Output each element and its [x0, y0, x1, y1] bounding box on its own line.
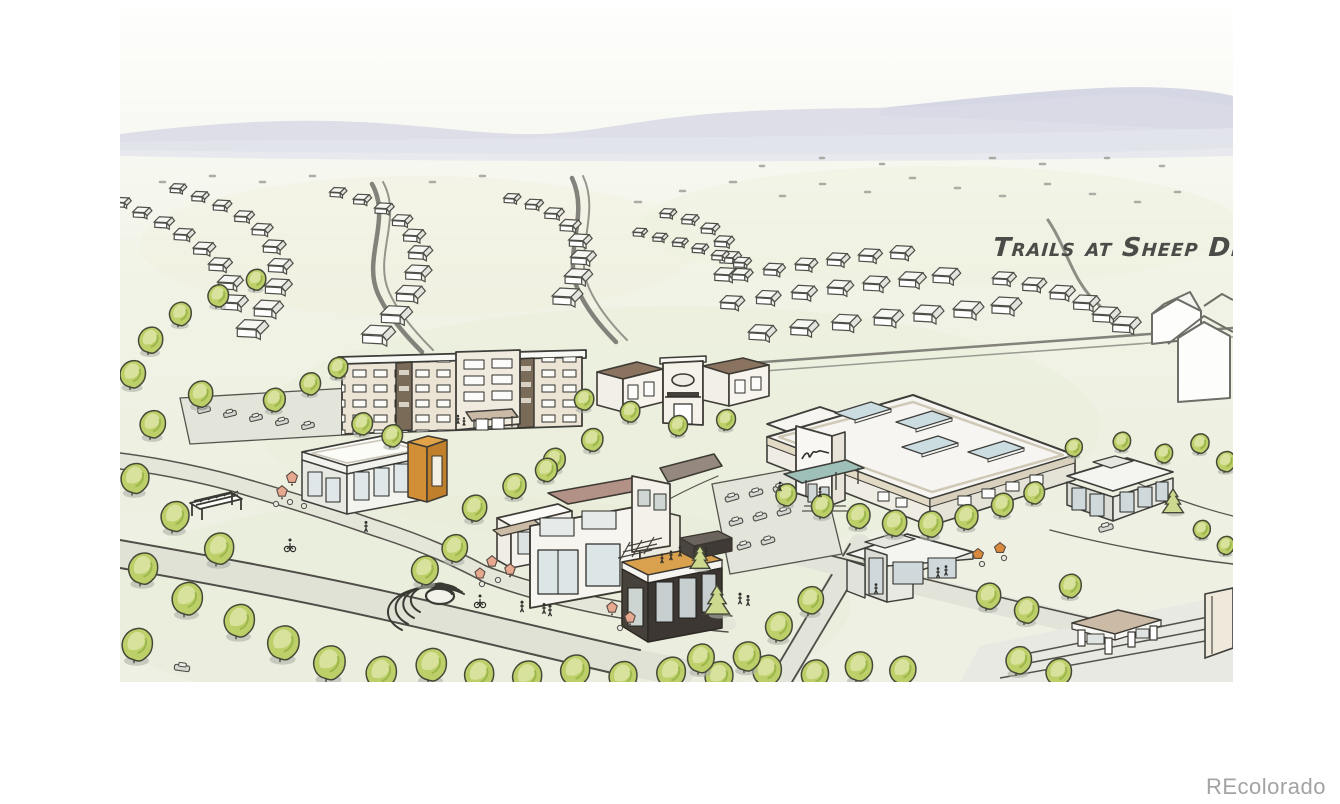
retail-building-west — [302, 436, 447, 514]
pavilion-east — [1067, 456, 1173, 533]
development-rendering: Trails at Sheep Dr — [120, 6, 1233, 682]
large-house-sketch — [1152, 292, 1233, 402]
pergola — [190, 491, 242, 520]
listing-rendering-page: Trails at Sheep Dr REcolorado — [0, 0, 1340, 804]
mountain-range — [120, 87, 1233, 161]
recolorado-watermark: REcolorado — [1206, 774, 1336, 800]
multifamily-building — [338, 350, 586, 434]
site-name-label: Trails at Sheep Dr — [992, 233, 1233, 263]
